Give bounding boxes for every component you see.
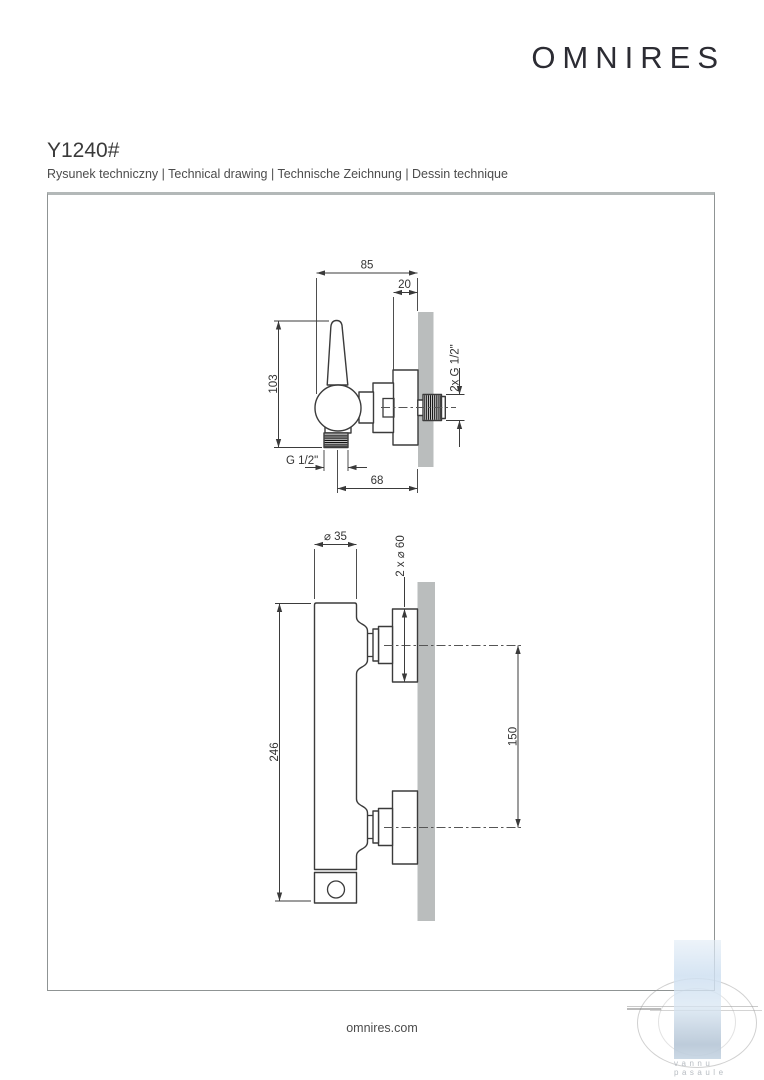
technical-drawing-canvas: 85 20 103 G 1/2" bbox=[0, 0, 764, 1080]
dim-label-height: 103 bbox=[268, 374, 280, 393]
dim-label-connection-spacing: 150 bbox=[508, 727, 520, 746]
spec-sheet-page: OMNIRES Y1240# Rysunek techniczny | Tech… bbox=[0, 0, 764, 1080]
dimension-150: 150 bbox=[508, 646, 520, 828]
dim-label-total-height: 246 bbox=[269, 742, 281, 761]
dimension-wall-thread: 2x G 1/2" bbox=[446, 344, 465, 447]
dimension-diameter-35: ⌀ 35 bbox=[315, 531, 357, 599]
upper-stub-outer bbox=[379, 627, 393, 664]
dimension-103: 103 bbox=[268, 321, 329, 448]
side-view-fixture bbox=[315, 321, 456, 448]
dimension-68: 68 bbox=[338, 450, 418, 493]
upper-stub-inner bbox=[373, 629, 379, 661]
label-wall-thread: 2x G 1/2" bbox=[450, 344, 462, 392]
mixer-handle bbox=[327, 321, 348, 386]
mixer-column bbox=[315, 603, 368, 870]
dim-label-body-diameter: ⌀ 35 bbox=[324, 531, 347, 543]
side-view-drawing: 85 20 103 G 1/2" bbox=[268, 260, 465, 494]
label-outlet-thread: G 1/2" bbox=[286, 455, 318, 467]
lower-stub-inner bbox=[373, 811, 379, 843]
front-view-drawing: ⌀ 35 2 x ⌀ 60 246 150 bbox=[269, 531, 523, 921]
valve-body bbox=[315, 385, 361, 431]
dimension-246: 246 bbox=[269, 604, 311, 902]
label-rosette-diameter: 2 x ⌀ 60 bbox=[395, 535, 407, 576]
watermark-band bbox=[674, 940, 721, 1059]
watermark-text: vannu pasaule bbox=[674, 1059, 734, 1077]
dimension-20: 20 bbox=[394, 279, 418, 370]
wall-section bbox=[418, 582, 436, 921]
outlet-thread-hatch bbox=[325, 435, 348, 446]
dimension-outlet-thread: G 1/2" bbox=[286, 450, 367, 471]
lower-stub-outer bbox=[379, 809, 393, 846]
dim-label-wall-offset: 20 bbox=[398, 279, 411, 291]
watermark-text-line2: pasaule bbox=[674, 1068, 734, 1077]
watermark-text-line1: vannu bbox=[674, 1059, 734, 1068]
dim-label-width: 85 bbox=[361, 260, 374, 272]
dim-label-depth: 68 bbox=[371, 475, 384, 487]
wall-section bbox=[418, 312, 434, 467]
